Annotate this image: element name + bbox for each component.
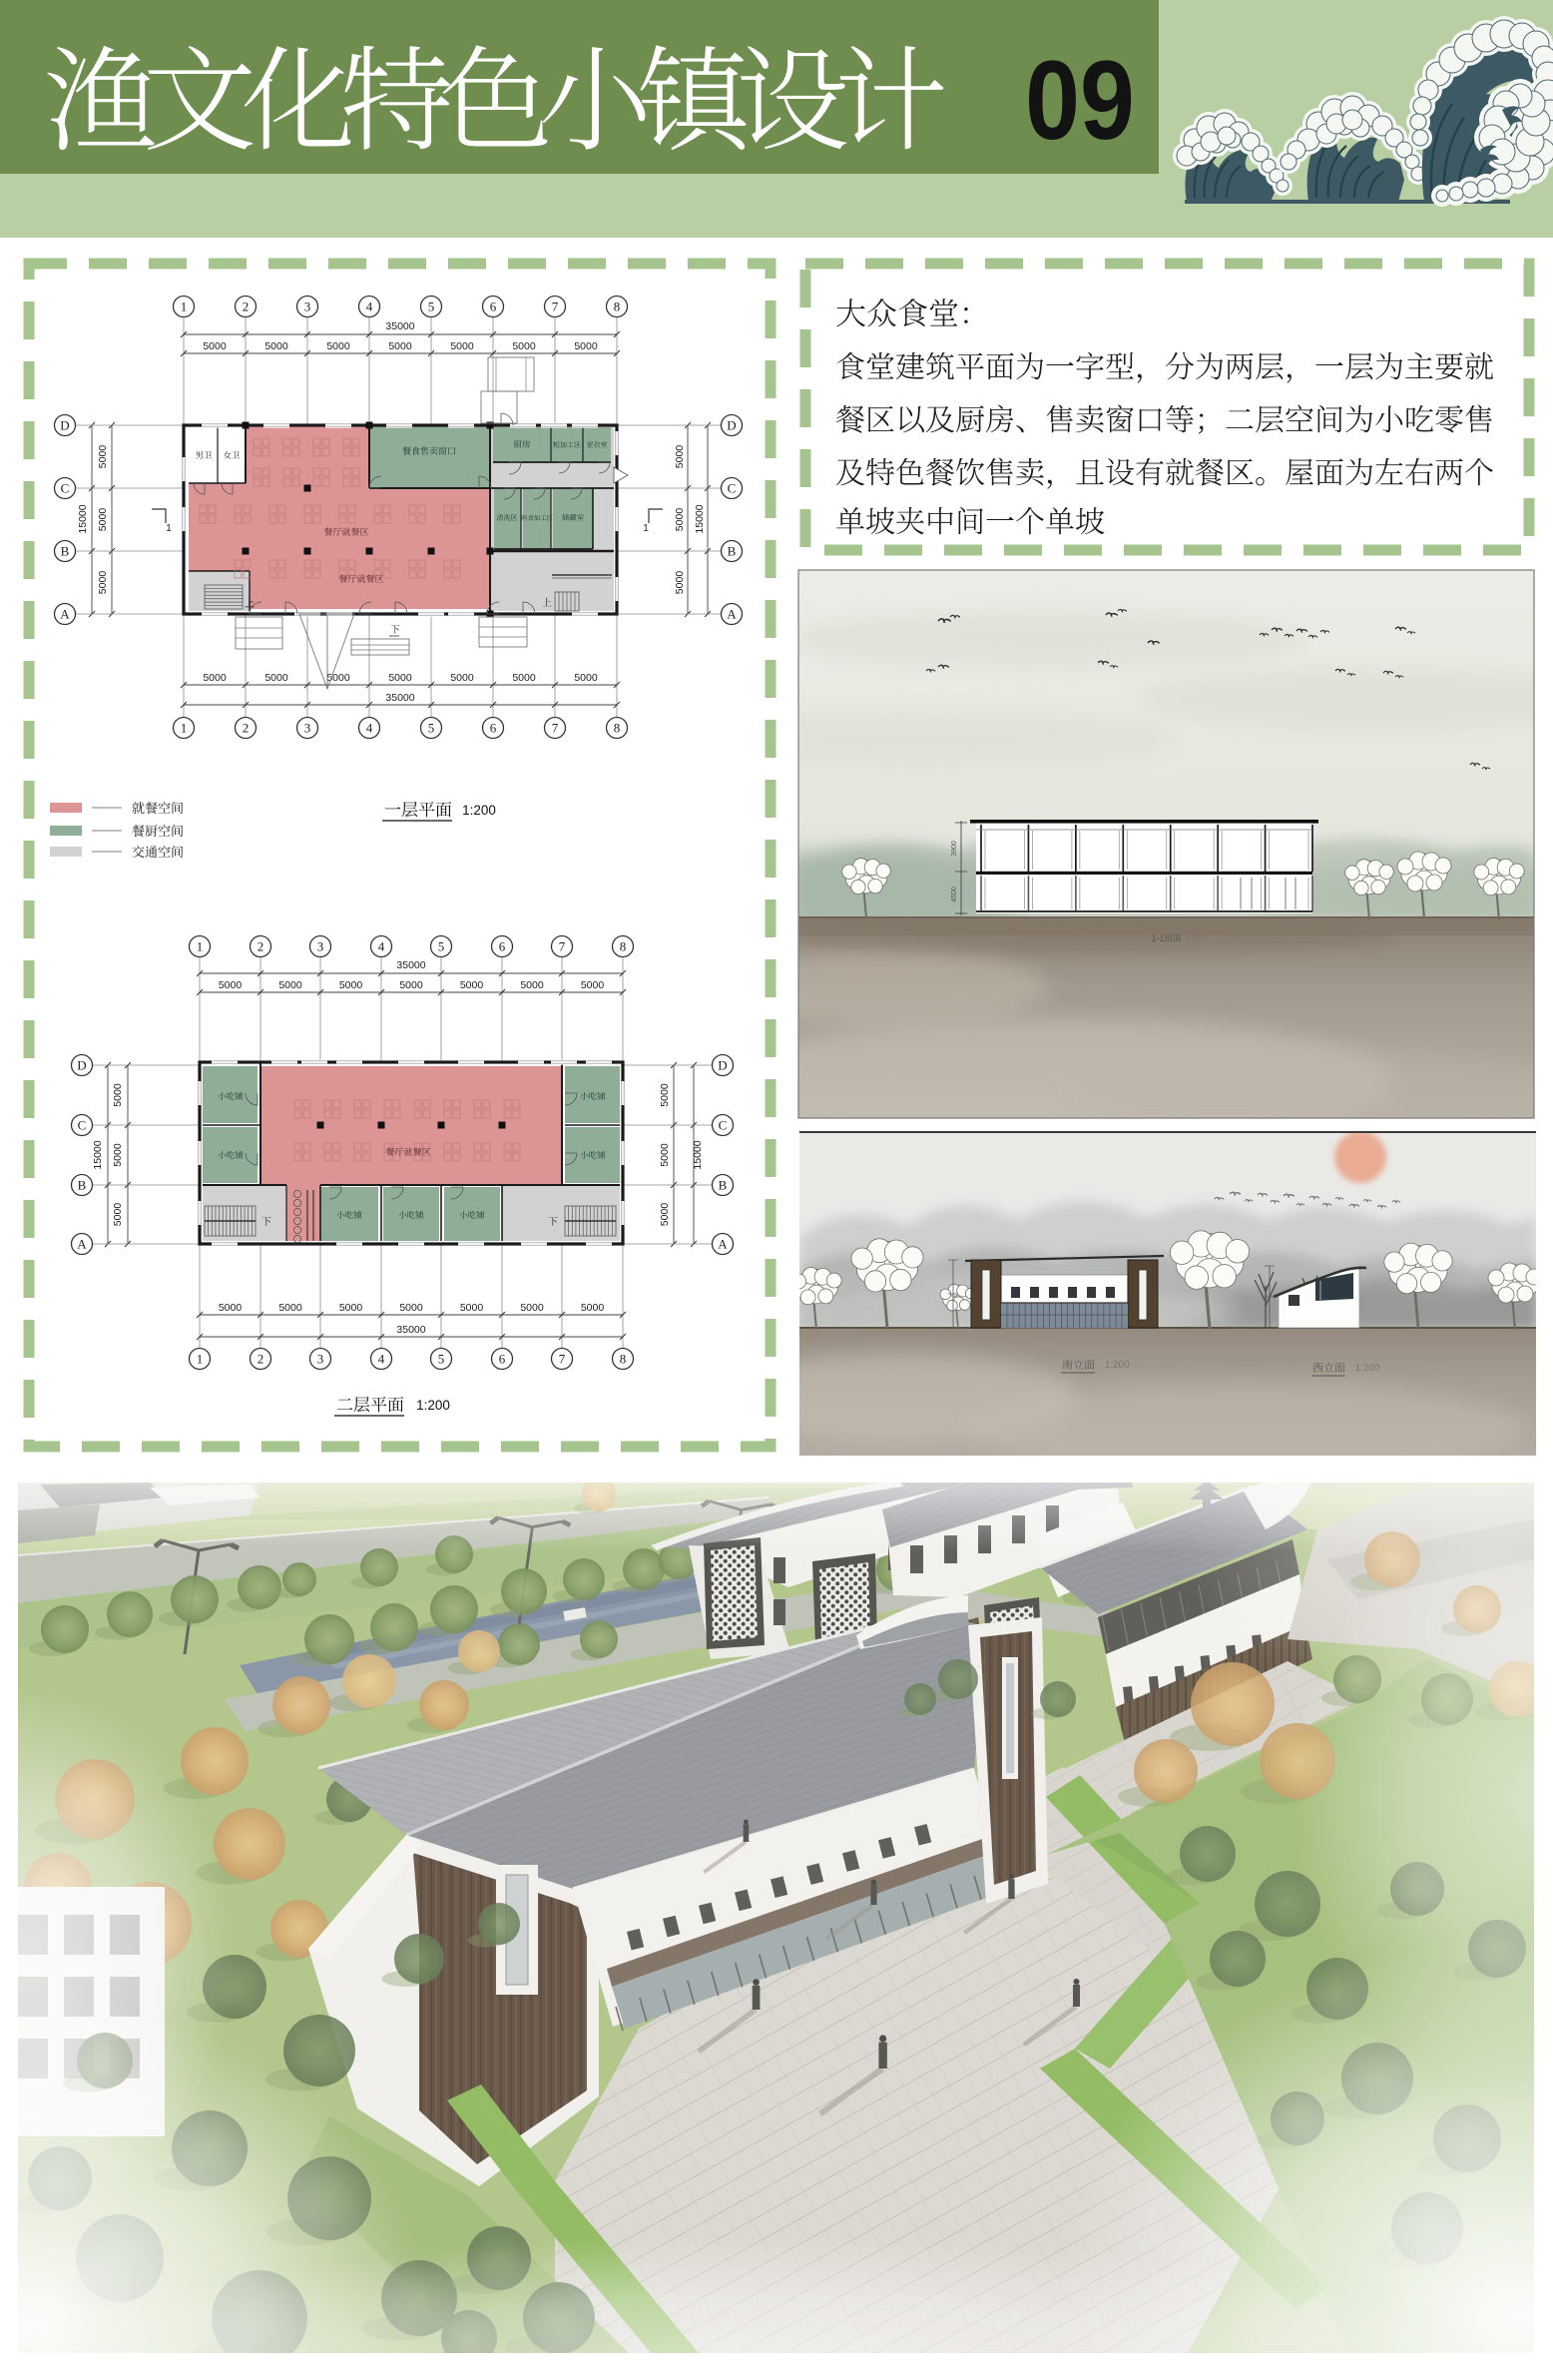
svg-text:6: 6 [499,1352,506,1367]
svg-text:5: 5 [438,939,445,954]
svg-text:C: C [61,481,70,496]
svg-text:1:200: 1:200 [1186,934,1207,943]
svg-text:5: 5 [428,299,435,314]
svg-text:6: 6 [499,939,506,954]
svg-text:5000: 5000 [674,571,686,595]
svg-text:5000: 5000 [97,508,109,532]
svg-text:1:200: 1:200 [462,803,496,818]
svg-text:4: 4 [378,1352,385,1367]
svg-text:4: 4 [366,299,373,314]
svg-text:7: 7 [559,1352,566,1367]
svg-text:C: C [719,1118,728,1133]
svg-text:B: B [728,544,737,559]
svg-text:D: D [727,418,736,433]
svg-text:A: A [727,607,737,622]
svg-text:15000: 15000 [694,504,706,533]
svg-text:B: B [61,544,70,559]
svg-text:5000: 5000 [278,979,302,991]
svg-text:15000: 15000 [692,1140,704,1169]
svg-text:7: 7 [552,299,559,314]
svg-text:5000: 5000 [520,979,544,991]
svg-text:5000: 5000 [203,672,227,684]
svg-text:1:200: 1:200 [416,1398,450,1413]
svg-text:5000: 5000 [581,1302,605,1314]
svg-text:1: 1 [197,1352,204,1367]
svg-text:5: 5 [428,721,435,736]
svg-text:7: 7 [552,721,559,736]
svg-text:8: 8 [620,939,627,954]
svg-text:B: B [719,1178,728,1193]
svg-text:2: 2 [243,299,250,314]
svg-text:3: 3 [317,1352,324,1367]
svg-text:35000: 35000 [385,320,414,332]
svg-text:6: 6 [490,299,497,314]
svg-text:C: C [728,481,737,496]
svg-text:1:200: 1:200 [1354,1363,1379,1374]
svg-text:5000: 5000 [512,340,536,352]
svg-text:8: 8 [620,1352,627,1367]
svg-text:1-1: 1-1 [1151,933,1164,943]
svg-text:A: A [718,1237,728,1252]
svg-text:5000: 5000 [112,1083,124,1107]
svg-text:4: 4 [378,939,385,954]
svg-text:上: 上 [245,598,255,610]
svg-text:35000: 35000 [396,959,425,971]
svg-text:4500: 4500 [951,887,958,902]
svg-text:5: 5 [438,1352,445,1367]
svg-text:8: 8 [614,721,621,736]
svg-text:5000: 5000 [203,340,227,352]
svg-text:1: 1 [166,523,172,534]
svg-text:B: B [78,1178,87,1193]
svg-text:5000: 5000 [264,340,288,352]
svg-text:5000: 5000 [450,340,474,352]
svg-text:3900: 3900 [951,841,958,857]
svg-text:1: 1 [181,721,188,736]
svg-text:3: 3 [304,721,311,736]
svg-text:7: 7 [559,939,566,954]
svg-text:5000: 5000 [112,1203,124,1227]
svg-text:C: C [78,1118,87,1133]
svg-text:2: 2 [258,1352,264,1367]
svg-text:5000: 5000 [512,672,536,684]
svg-text:2: 2 [258,939,264,954]
svg-text:5000: 5000 [219,1302,243,1314]
svg-text:D: D [718,1058,727,1073]
svg-text:35000: 35000 [385,692,414,704]
svg-text:5000: 5000 [278,1302,302,1314]
svg-text:1: 1 [181,299,188,314]
svg-text:5000: 5000 [460,979,484,991]
svg-text:5000: 5000 [264,672,288,684]
svg-text:5000: 5000 [659,1083,671,1107]
svg-text:4: 4 [366,721,373,736]
svg-text:5000: 5000 [659,1143,671,1167]
svg-text:5000: 5000 [520,1302,544,1314]
svg-text:2: 2 [243,721,250,736]
svg-text:5000: 5000 [339,1302,363,1314]
svg-text:5000: 5000 [450,672,474,684]
svg-text:5000: 5000 [659,1203,671,1227]
svg-text:35000: 35000 [396,1324,425,1336]
svg-text:D: D [77,1058,86,1073]
svg-text:5000: 5000 [674,508,686,532]
svg-text:6: 6 [490,721,497,736]
svg-text:D: D [60,418,69,433]
svg-text:5000: 5000 [581,979,605,991]
svg-text:8: 8 [614,299,621,314]
svg-text:5000: 5000 [574,340,598,352]
svg-text:5000: 5000 [574,672,598,684]
svg-text:5000: 5000 [326,340,350,352]
svg-text:5000: 5000 [399,1302,423,1314]
svg-text:15000: 15000 [92,1140,104,1169]
svg-text:5000: 5000 [112,1143,124,1167]
svg-text:5000: 5000 [388,340,412,352]
svg-text:1: 1 [197,939,204,954]
svg-text:5000: 5000 [388,672,412,684]
svg-text:09: 09 [1025,39,1135,163]
svg-text:5000: 5000 [97,445,109,469]
svg-text:5000: 5000 [97,571,109,595]
svg-text:1: 1 [643,523,649,534]
svg-text:A: A [77,1237,87,1252]
svg-text:3: 3 [304,299,311,314]
svg-text:3: 3 [317,939,324,954]
svg-text:5000: 5000 [219,979,243,991]
svg-text:5000: 5000 [339,979,363,991]
svg-text:5000: 5000 [460,1302,484,1314]
svg-text:1:200: 1:200 [1104,1360,1129,1371]
svg-text:5000: 5000 [399,979,423,991]
svg-text:A: A [60,607,70,622]
svg-text:5000: 5000 [674,445,686,469]
svg-text:15000: 15000 [77,504,89,533]
